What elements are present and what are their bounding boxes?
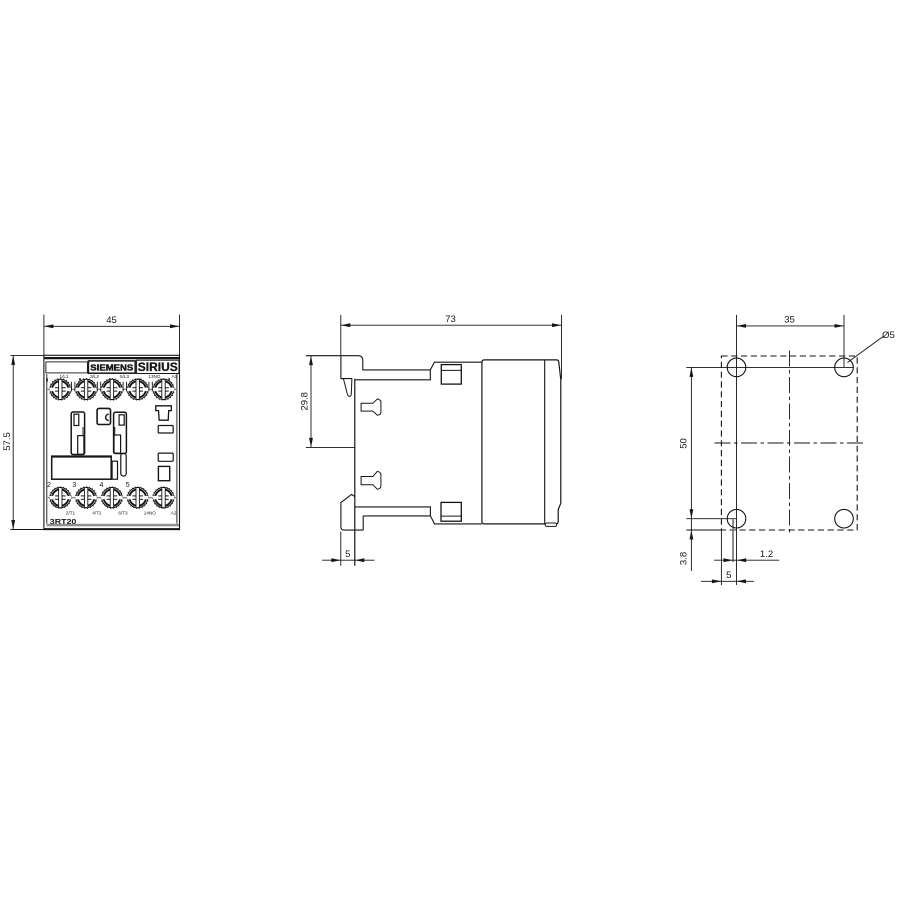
svg-text:50: 50 [679,438,690,449]
svg-text:Ø5: Ø5 [882,330,895,341]
svg-text:2/T1: 2/T1 [66,510,76,515]
svg-text:A2: A2 [171,510,177,515]
svg-text:5: 5 [126,482,130,489]
svg-text:5: 5 [345,549,350,560]
svg-text:5/L3: 5/L3 [120,374,129,379]
svg-text:1/L1: 1/L1 [60,374,69,379]
svg-text:2: 2 [47,482,51,489]
svg-text:A1: A1 [172,374,178,379]
svg-text:57.5: 57.5 [2,432,13,451]
svg-text:14NO: 14NO [144,510,156,515]
svg-text:3/L2: 3/L2 [90,374,99,379]
svg-text:SIRIUS: SIRIUS [138,362,178,374]
svg-text:4: 4 [99,482,103,489]
svg-text:4/T2: 4/T2 [92,510,102,515]
svg-text:6/T3: 6/T3 [118,510,128,515]
svg-text:73: 73 [445,314,456,325]
svg-text:3: 3 [72,482,76,489]
svg-text:29.8: 29.8 [300,392,311,411]
svg-text:13NO: 13NO [148,374,160,379]
svg-text:35: 35 [784,315,795,326]
svg-text:1.2: 1.2 [760,549,773,560]
svg-text:5: 5 [726,570,731,581]
svg-text:SIEMENS: SIEMENS [90,364,134,373]
svg-text:45: 45 [106,315,117,326]
svg-text:3.8: 3.8 [679,552,690,565]
